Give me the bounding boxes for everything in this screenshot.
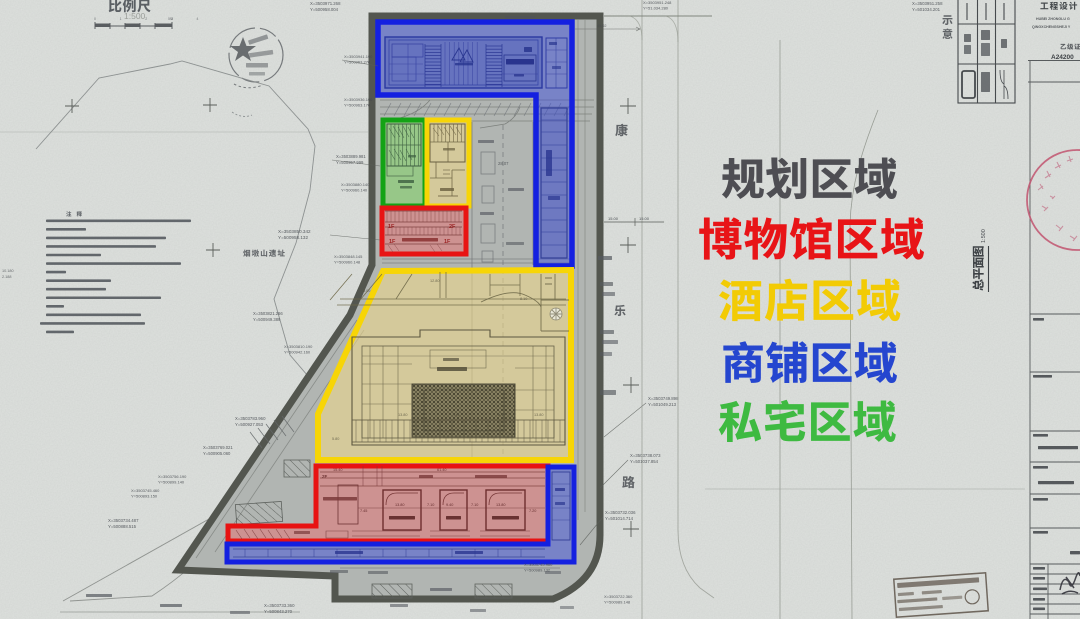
svg-text:Y=501014.714: Y=501014.714 — [605, 516, 634, 521]
svg-text:12.80: 12.80 — [430, 279, 440, 283]
svg-text:X=3503936.190: X=3503936.190 — [344, 97, 373, 102]
svg-text:X=3503971.268: X=3503971.268 — [310, 1, 341, 6]
svg-text:X=3503951.248: X=3503951.248 — [643, 0, 672, 5]
svg-text:Y=501037.854: Y=501037.854 — [630, 459, 659, 464]
svg-text:X=3503850.342: X=3503850.342 — [278, 229, 311, 234]
svg-text:Y=500958.132: Y=500958.132 — [278, 235, 308, 240]
svg-text:13.80: 13.80 — [398, 413, 408, 417]
svg-text:X=3503810.190: X=3503810.190 — [284, 344, 313, 349]
svg-text:X=3503769.021: X=3503769.021 — [203, 445, 233, 450]
svg-text:Y=500958.004: Y=500958.004 — [310, 7, 339, 12]
svg-text:Y=500905.060: Y=500905.060 — [203, 451, 231, 456]
svg-text:X=3503889.981: X=3503889.981 — [336, 154, 366, 159]
svg-text:Y=500963.170: Y=500963.170 — [344, 103, 371, 108]
svg-text:QINGXCHENGSHEJI Y: QINGXCHENGSHEJI Y — [1032, 25, 1071, 29]
svg-text:15.40: 15.40 — [333, 468, 343, 472]
svg-text:7.20: 7.20 — [529, 509, 536, 513]
svg-text:28.07: 28.07 — [498, 161, 509, 166]
svg-text:X=3503783.960: X=3503783.960 — [235, 416, 266, 421]
svg-text:13.80: 13.80 — [534, 413, 544, 417]
svg-text:Y=500989.132: Y=500989.132 — [524, 568, 551, 573]
svg-text:1F: 1F — [444, 239, 451, 245]
svg-text:Y=500989.148: Y=500989.148 — [604, 600, 631, 605]
svg-text:Y=500942.160: Y=500942.160 — [284, 350, 311, 355]
svg-text:X=3503848.145: X=3503848.145 — [334, 254, 363, 259]
svg-text:Y=500893.150: Y=500893.150 — [131, 494, 158, 499]
svg-text:HUBEI ZHONGLU G: HUBEI ZHONGLU G — [1036, 17, 1070, 21]
svg-text:Y=51.034.280: Y=51.034.280 — [643, 6, 669, 11]
svg-text:X=3503732.036: X=3503732.036 — [605, 510, 636, 515]
svg-text:X=3503745.460: X=3503745.460 — [131, 488, 160, 493]
svg-text:1:500: 1:500 — [981, 229, 987, 243]
svg-text:7.10: 7.10 — [427, 503, 434, 507]
svg-text:Y=500843.270: Y=500843.270 — [264, 609, 293, 614]
svg-text:Y=501049.213: Y=501049.213 — [648, 402, 677, 407]
svg-text:X=3503756.190: X=3503756.190 — [158, 474, 187, 479]
svg-text:2.188: 2.188 — [2, 275, 12, 279]
svg-text:0 1 2 3 4: 0 1 2 3 4 — [94, 17, 210, 21]
svg-text:Y=500960.148: Y=500960.148 — [334, 260, 361, 265]
svg-text:10.180: 10.180 — [2, 269, 14, 273]
svg-text:13.80: 13.80 — [395, 503, 405, 507]
svg-text:7.45: 7.45 — [360, 509, 367, 513]
svg-text:2F: 2F — [322, 474, 328, 479]
svg-text:1F: 1F — [389, 239, 396, 245]
svg-text:13.80: 13.80 — [496, 503, 506, 507]
svg-text:9.40: 9.40 — [446, 503, 453, 507]
svg-text:X=3503734.487: X=3503734.487 — [108, 518, 139, 523]
svg-text:X=3503880.140: X=3503880.140 — [341, 182, 370, 187]
svg-text:Y=500899.140: Y=500899.140 — [158, 480, 185, 485]
svg-text:8.10: 8.10 — [520, 297, 527, 301]
svg-text:61.40: 61.40 — [437, 468, 447, 472]
svg-text:Y=500888.515: Y=500888.515 — [108, 524, 137, 529]
svg-text:45.02: 45.02 — [597, 24, 607, 28]
svg-text:2F: 2F — [449, 224, 456, 230]
svg-text:1F: 1F — [388, 224, 395, 230]
svg-text:15.00: 15.00 — [639, 216, 650, 221]
svg-text:X=3503722.360: X=3503722.360 — [604, 594, 633, 599]
svg-text:Y=501034.201: Y=501034.201 — [912, 7, 941, 12]
svg-text:X=3503821.266: X=3503821.266 — [253, 311, 283, 316]
svg-text:Y=500927.053: Y=500927.053 — [235, 422, 264, 427]
svg-text:15.00: 15.00 — [608, 216, 619, 221]
svg-text:5.80: 5.80 — [332, 437, 339, 441]
svg-text:6.00: 6.00 — [363, 289, 370, 293]
svg-text:X=3503749.898: X=3503749.898 — [648, 396, 679, 401]
svg-text:X=3503733.360: X=3503733.360 — [264, 603, 295, 608]
svg-text:X=3503745.960: X=3503745.960 — [524, 562, 553, 567]
svg-text:Y=500960.140: Y=500960.140 — [341, 188, 368, 193]
svg-text:X=3503941.190: X=3503941.190 — [344, 54, 373, 59]
svg-text:Y=500949.389: Y=500949.389 — [253, 317, 281, 322]
svg-text:X=3503951.258: X=3503951.258 — [912, 1, 943, 6]
svg-text:5M: 5M — [168, 17, 173, 21]
svg-text:A24200: A24200 — [1051, 54, 1074, 61]
svg-text:7.10: 7.10 — [471, 503, 478, 507]
svg-text:7.10: 7.10 — [452, 413, 459, 417]
svg-text:X=3503738.073: X=3503738.073 — [630, 453, 661, 458]
svg-text:9.40: 9.40 — [498, 413, 505, 417]
